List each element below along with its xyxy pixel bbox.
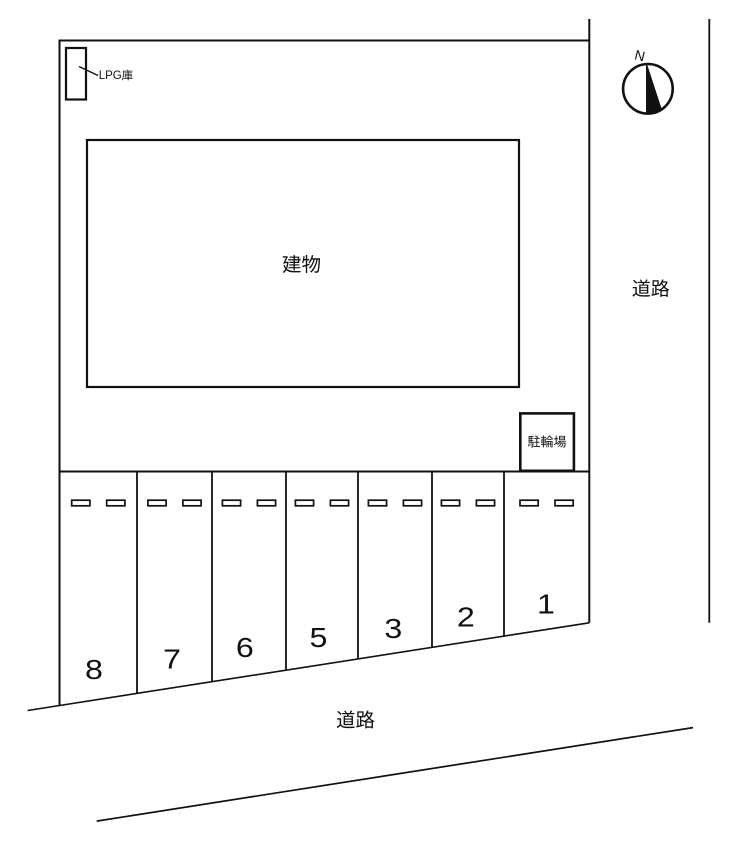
svg-text:7: 7: [163, 645, 181, 676]
svg-text:3: 3: [384, 614, 402, 645]
svg-text:2: 2: [457, 603, 475, 634]
svg-text:LPG: LPG: [99, 70, 122, 82]
svg-text:8: 8: [85, 655, 103, 686]
svg-text:5: 5: [310, 623, 328, 654]
svg-text:6: 6: [236, 633, 254, 664]
svg-text:N: N: [633, 46, 647, 64]
svg-text:1: 1: [537, 589, 555, 620]
